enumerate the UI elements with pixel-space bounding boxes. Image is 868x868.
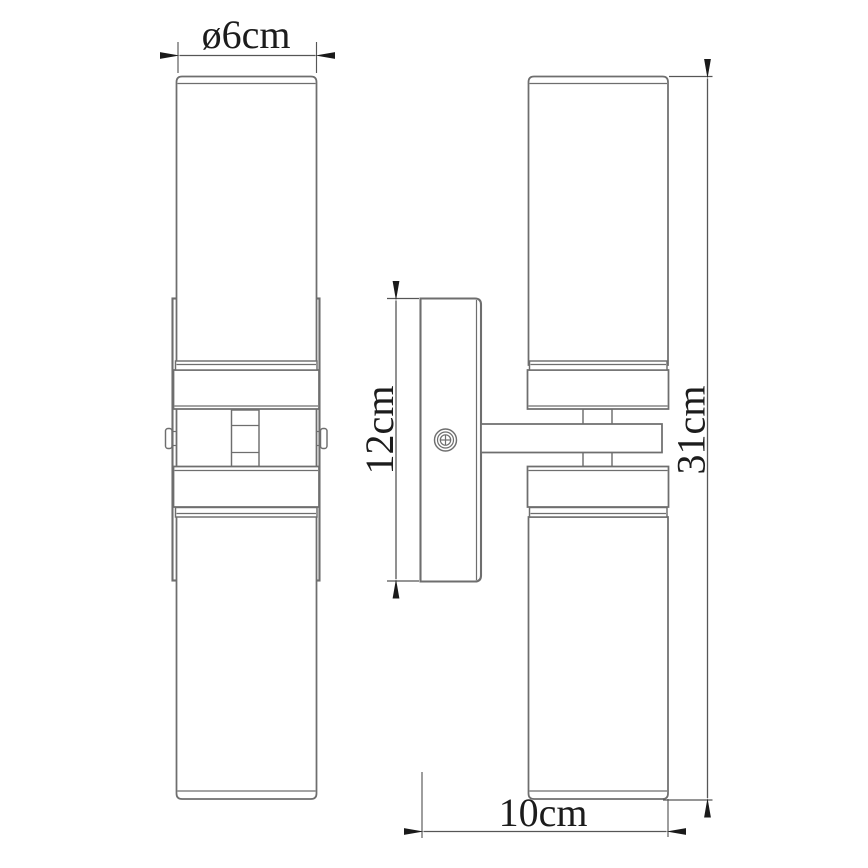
dimension-diameter: ø6cm bbox=[178, 12, 317, 73]
side-upper-tube bbox=[529, 77, 669, 366]
depth-label: 10cm bbox=[499, 790, 588, 835]
front-upper-cap bbox=[174, 370, 320, 409]
mounting-screw-icon bbox=[435, 429, 457, 451]
front-lower-trim-band bbox=[176, 508, 318, 518]
side-view bbox=[421, 77, 669, 800]
side-upper-holder-cap bbox=[528, 370, 669, 409]
diameter-label: ø6cm bbox=[202, 12, 291, 57]
front-view bbox=[166, 77, 328, 800]
front-upper-band bbox=[176, 361, 318, 370]
side-upper-band bbox=[530, 361, 668, 370]
front-lower-band bbox=[176, 508, 318, 518]
side-lower-trim-band bbox=[530, 508, 668, 518]
dimension-bracket-height: 12cm bbox=[357, 299, 419, 582]
dimension-total-height: 31cm bbox=[663, 77, 714, 801]
left-knob-body bbox=[166, 429, 173, 449]
total-height-label: 31cm bbox=[669, 386, 714, 475]
side-lower-band bbox=[530, 508, 668, 518]
technical-drawing-page: ø6cm 12cm 31cm 10cm bbox=[0, 0, 868, 868]
front-lower-cap bbox=[174, 467, 320, 508]
side-lower-holder-cap bbox=[528, 467, 669, 508]
wall-lamp-dimension-drawing: ø6cm 12cm 31cm 10cm bbox=[0, 0, 868, 868]
right-knob-body bbox=[321, 429, 328, 449]
side-lower-cap bbox=[528, 467, 669, 508]
front-center-connector bbox=[232, 410, 260, 467]
side-upper-trim-band bbox=[530, 361, 668, 370]
front-connector-column bbox=[232, 410, 260, 467]
front-upper-holder-cap bbox=[174, 370, 320, 409]
side-support-arm bbox=[481, 424, 662, 453]
side-upper-cap bbox=[528, 370, 669, 409]
front-lower-holder-cap bbox=[174, 467, 320, 508]
side-lower-tube bbox=[529, 517, 669, 799]
bracket-height-label: 12cm bbox=[357, 386, 402, 475]
front-upper-trim-band bbox=[176, 361, 318, 370]
